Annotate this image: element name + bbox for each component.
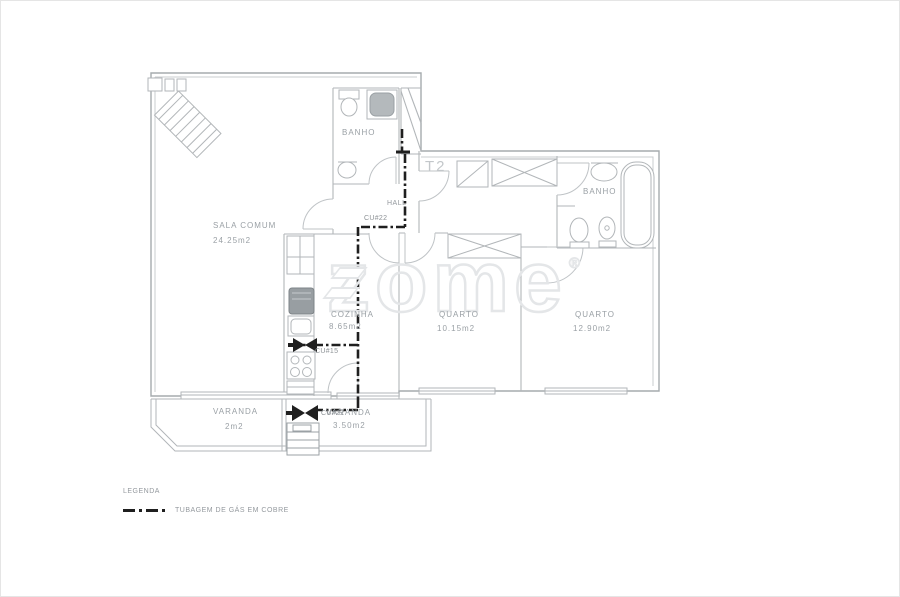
legend-item-label: TUBAGEM DE GÁS EM COBRE bbox=[175, 507, 289, 514]
room-label-banho-top: BANHO bbox=[342, 129, 375, 137]
room-area-varanda-2: 3.50m2 bbox=[333, 422, 366, 430]
gas-valve-label-cozinha: CU#15 bbox=[315, 348, 338, 355]
unit-type-label: T2 bbox=[425, 159, 447, 174]
gas-line-symbol bbox=[123, 509, 165, 512]
room-label-quarto-2: QUARTO bbox=[575, 311, 615, 319]
room-area-quarto-1: 10.15m2 bbox=[437, 325, 475, 333]
floor-plan-canvas: zome ® SALA COMUM 24.25m2 BANHO HALL CU#… bbox=[0, 0, 900, 597]
gas-valve-varanda bbox=[286, 405, 318, 421]
room-label-varanda-1: VARANDA bbox=[213, 408, 258, 416]
room-area-sala: 24.25m2 bbox=[213, 237, 251, 245]
gas-valve-label-hall: CU#22 bbox=[364, 215, 387, 222]
water-heater bbox=[287, 423, 319, 455]
room-label-quarto-1: QUARTO bbox=[439, 311, 479, 319]
room-area-varanda-1: 2m2 bbox=[225, 423, 244, 431]
bathroom-suite-fixtures bbox=[570, 162, 654, 248]
legend-title: LEGENDA bbox=[123, 488, 289, 495]
gas-valve-kitchen bbox=[288, 338, 317, 352]
room-label-cozinha: COZINHA bbox=[331, 311, 374, 319]
window-symbols bbox=[181, 388, 627, 399]
kitchen-fixtures bbox=[287, 234, 315, 396]
room-area-cozinha: 8.65m2 bbox=[329, 323, 362, 331]
room-label-sala: SALA COMUM bbox=[213, 222, 276, 230]
door-arcs bbox=[303, 157, 589, 393]
room-label-banho-suite: BANHO bbox=[583, 188, 616, 196]
fireplace-hatched bbox=[148, 78, 221, 158]
room-label-hall: HALL bbox=[387, 200, 407, 207]
gas-valve-label-varanda: CU#22 bbox=[321, 410, 344, 417]
room-area-quarto-2: 12.90m2 bbox=[573, 325, 611, 333]
legend: LEGENDA TUBAGEM DE GÁS EM COBRE bbox=[123, 488, 289, 514]
wardrobes bbox=[448, 159, 557, 258]
legend-item-gas: TUBAGEM DE GÁS EM COBRE bbox=[123, 507, 289, 514]
